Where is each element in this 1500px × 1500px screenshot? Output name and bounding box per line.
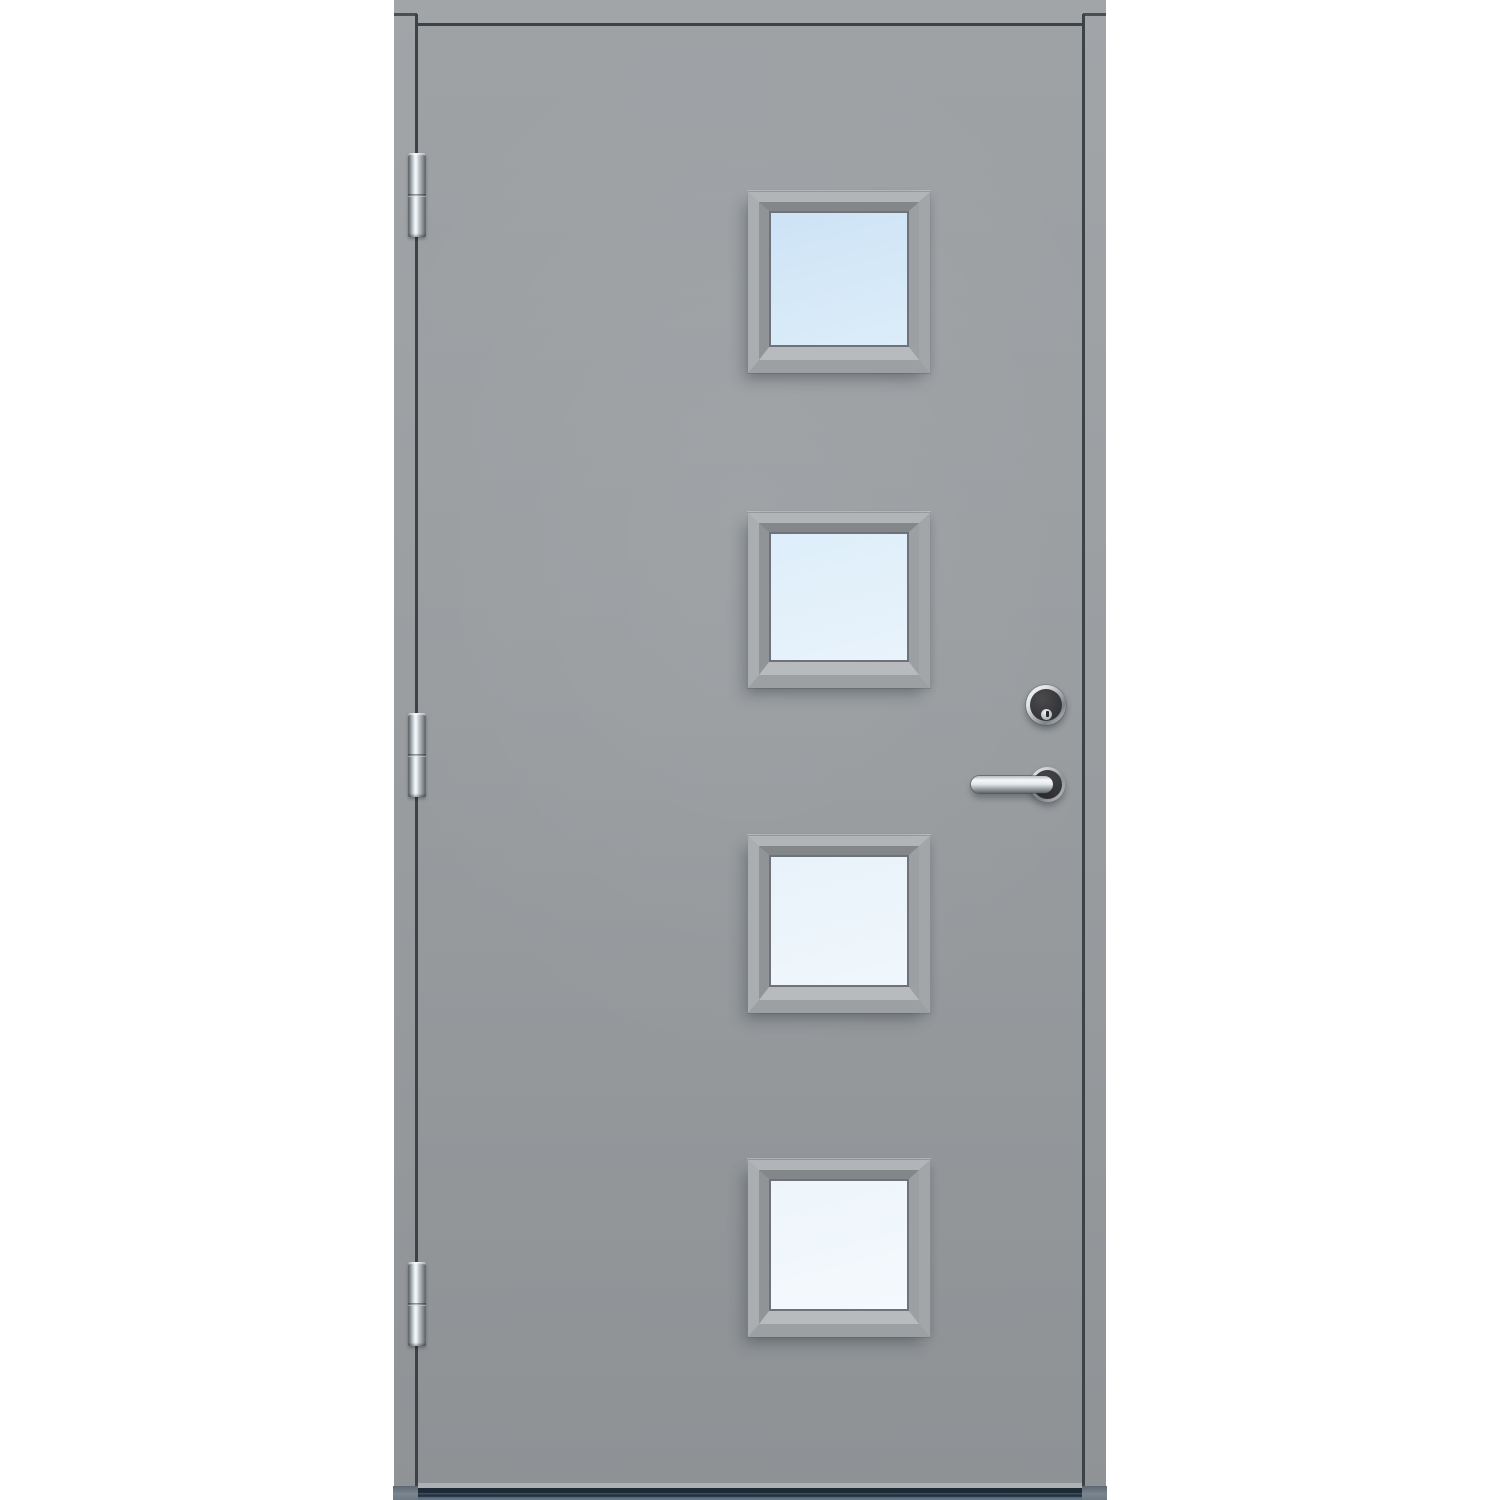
hinge-middle [408, 713, 426, 797]
hinge-top [408, 153, 426, 237]
hinge-seam [408, 754, 426, 757]
window-1-glass [769, 211, 909, 347]
frame-foot-left [393, 1486, 418, 1500]
hinge-seam [408, 1303, 426, 1306]
door-leaf [418, 26, 1082, 1483]
hinge-seam [408, 194, 426, 197]
door-product-photo [0, 0, 1500, 1500]
door-gap-right [1082, 14, 1085, 1486]
threshold-sill [418, 1488, 1082, 1500]
window-2-glass [769, 532, 909, 662]
window-4-glass [769, 1179, 909, 1311]
frame-foot-right [1082, 1486, 1107, 1500]
window-3 [748, 836, 930, 1013]
handle-lever [971, 776, 1053, 793]
keyhole [1041, 709, 1052, 720]
window-3-glass [769, 855, 909, 987]
frame-joint-right [1083, 13, 1106, 16]
window-1 [748, 192, 930, 373]
window-4 [748, 1160, 930, 1337]
hinge-bottom [408, 1262, 426, 1346]
window-2 [748, 513, 930, 688]
frame-joint-left [394, 13, 417, 16]
lock-cylinder [1026, 685, 1066, 725]
